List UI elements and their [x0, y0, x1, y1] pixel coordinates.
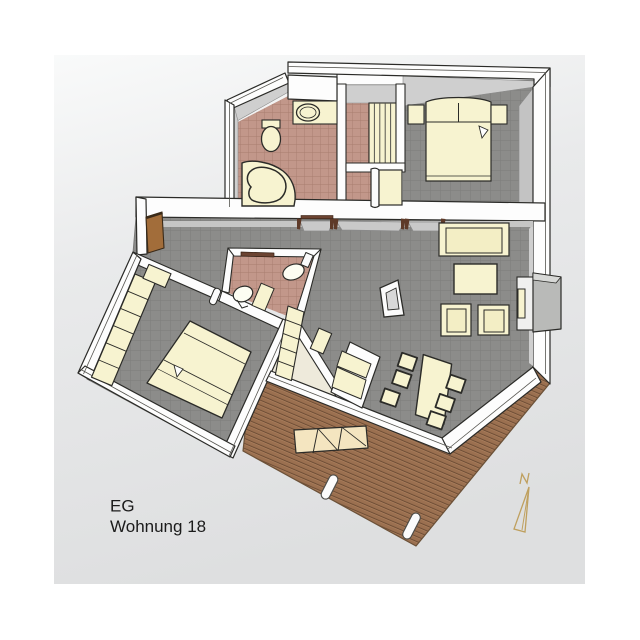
svg-text:EG: EG: [110, 497, 135, 516]
svg-text:Wohnung 18: Wohnung 18: [110, 517, 206, 536]
